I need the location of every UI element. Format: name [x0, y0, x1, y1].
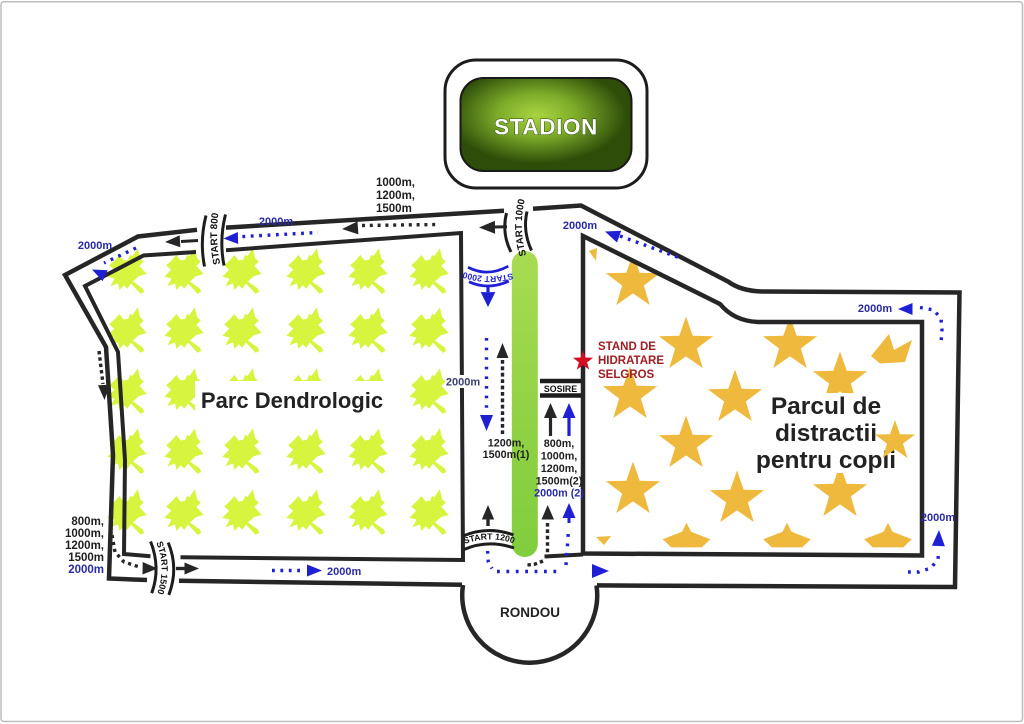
svg-text:2000m: 2000m	[563, 220, 597, 232]
svg-text:1200m,: 1200m,	[541, 463, 578, 475]
svg-text:2000m: 2000m	[327, 566, 361, 578]
svg-text:800m,: 800m,	[71, 516, 104, 528]
svg-text:2000m (2): 2000m (2)	[534, 488, 584, 500]
svg-text:1500m: 1500m	[376, 203, 412, 215]
svg-text:2000m: 2000m	[259, 216, 293, 228]
svg-text:1500m(1): 1500m(1)	[483, 449, 530, 461]
svg-text:1200m,: 1200m,	[65, 540, 104, 552]
svg-text:2000m: 2000m	[78, 240, 112, 252]
svg-text:2000m: 2000m	[858, 303, 892, 315]
svg-text:RONDOU: RONDOU	[500, 605, 560, 620]
svg-text:distractii: distractii	[775, 420, 877, 447]
svg-text:SELGROS: SELGROS	[598, 369, 655, 381]
svg-text:1000m,: 1000m,	[541, 451, 578, 463]
svg-text:1500m(2): 1500m(2)	[536, 476, 583, 488]
svg-text:800m,: 800m,	[544, 438, 575, 450]
svg-text:2000m: 2000m	[68, 564, 104, 576]
svg-text:STAND DE: STAND DE	[598, 341, 656, 353]
svg-text:2000m: 2000m	[446, 377, 480, 389]
svg-text:2000m: 2000m	[921, 512, 955, 524]
svg-text:STADION: STADION	[494, 115, 598, 140]
svg-text:1000m,: 1000m,	[376, 177, 415, 189]
svg-text:SOSIRE: SOSIRE	[544, 384, 577, 394]
svg-text:Parc Dendrologic: Parc Dendrologic	[201, 388, 383, 413]
svg-text:1500m: 1500m	[68, 552, 104, 564]
svg-text:pentru copii: pentru copii	[756, 447, 896, 474]
svg-text:1000m,: 1000m,	[65, 528, 104, 540]
svg-text:HIDRATARE: HIDRATARE	[598, 355, 664, 367]
svg-text:1200m,: 1200m,	[376, 190, 415, 202]
svg-text:Parcul de: Parcul de	[771, 393, 881, 420]
svg-text:1200m,: 1200m,	[488, 438, 525, 450]
